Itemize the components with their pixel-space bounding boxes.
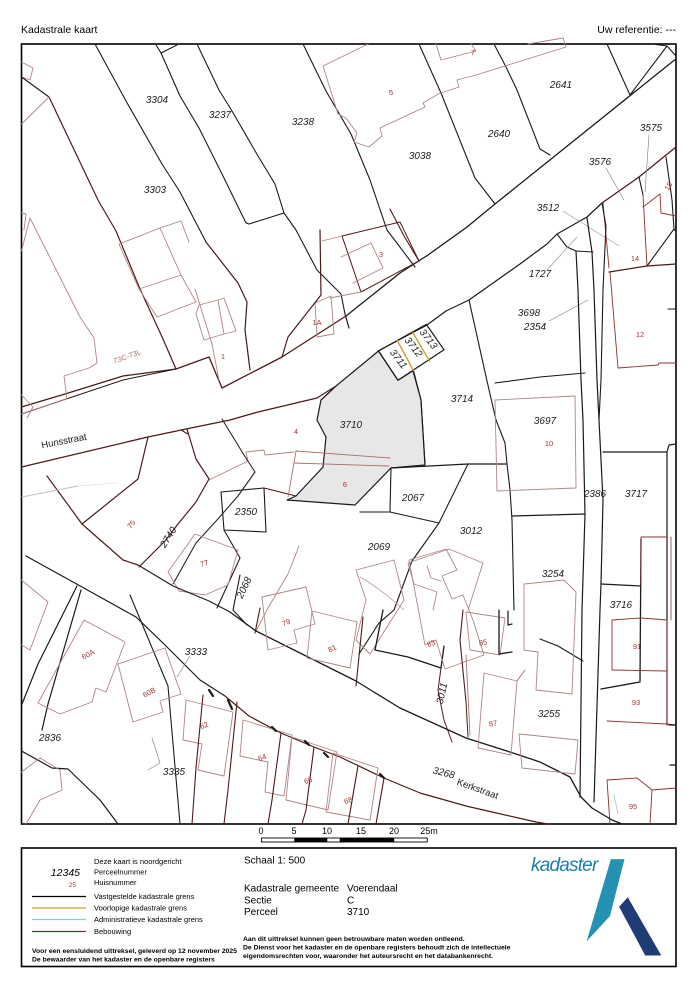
svg-text:10: 10 <box>322 826 332 836</box>
svg-text:3335: 3335 <box>163 767 186 778</box>
svg-text:3333: 3333 <box>185 647 208 658</box>
svg-text:12345: 12345 <box>51 867 80 879</box>
svg-text:6: 6 <box>343 480 347 489</box>
svg-text:3576: 3576 <box>589 157 612 168</box>
svg-text:4: 4 <box>294 427 298 436</box>
svg-text:2350: 2350 <box>234 507 258 518</box>
svg-text:Kadastrale kaart: Kadastrale kaart <box>21 24 98 36</box>
svg-text:2386: 2386 <box>583 489 607 500</box>
svg-text:3716: 3716 <box>610 600 633 611</box>
svg-text:2640: 2640 <box>487 129 511 140</box>
svg-text:Perceelnummer: Perceelnummer <box>94 868 147 877</box>
svg-text:95: 95 <box>629 802 637 811</box>
svg-text:7: 7 <box>471 48 475 57</box>
svg-text:3304: 3304 <box>146 95 169 106</box>
svg-text:3512: 3512 <box>537 203 560 214</box>
svg-text:87: 87 <box>488 718 498 728</box>
svg-text:eigendomsrechten voor, waarond: eigendomsrechten voor, waaronder het aut… <box>243 953 493 960</box>
svg-text:3698: 3698 <box>518 308 541 319</box>
svg-text:10: 10 <box>545 439 553 448</box>
svg-text:2067: 2067 <box>401 493 425 504</box>
svg-text:Huisnummer: Huisnummer <box>94 878 137 887</box>
svg-text:Deze kaart is noordgericht: Deze kaart is noordgericht <box>94 857 182 866</box>
svg-text:3012: 3012 <box>460 526 483 537</box>
svg-text:25m: 25m <box>420 826 438 836</box>
svg-text:5: 5 <box>389 88 393 97</box>
svg-text:2641: 2641 <box>549 80 572 91</box>
svg-text:2836: 2836 <box>38 733 62 744</box>
svg-text:25: 25 <box>69 882 77 889</box>
svg-text:14: 14 <box>631 254 639 263</box>
svg-text:15: 15 <box>356 826 366 836</box>
svg-text:2069: 2069 <box>367 542 391 553</box>
svg-text:Voor een eensluidend uittrekse: Voor een eensluidend uittreksel, gelever… <box>32 948 237 955</box>
svg-text:C: C <box>347 896 354 907</box>
svg-text:3575: 3575 <box>640 123 663 134</box>
svg-text:Aan dit uittreksel kunnen geen: Aan dit uittreksel kunnen geen betrouwba… <box>243 936 465 943</box>
svg-text:Vastgestelde kadastrale grens: Vastgestelde kadastrale grens <box>94 892 195 901</box>
svg-text:Voerendaal: Voerendaal <box>347 884 398 895</box>
svg-text:91: 91 <box>633 642 641 651</box>
svg-text:3254: 3254 <box>542 569 565 580</box>
svg-text:Sectie: Sectie <box>244 896 272 907</box>
svg-text:Perceel: Perceel <box>244 907 278 918</box>
svg-text:93: 93 <box>632 698 640 707</box>
svg-text:3238: 3238 <box>292 117 315 128</box>
svg-text:3237: 3237 <box>209 110 232 121</box>
svg-text:3710: 3710 <box>340 420 363 431</box>
svg-text:3038: 3038 <box>409 151 432 162</box>
svg-text:12: 12 <box>636 330 644 339</box>
svg-text:De bewaarder van het kadaster: De bewaarder van het kadaster en de open… <box>32 957 215 964</box>
svg-text:kadaster: kadaster <box>531 855 599 876</box>
svg-text:5: 5 <box>291 826 296 836</box>
svg-text:3255: 3255 <box>538 709 561 720</box>
svg-text:Kadastrale gemeente: Kadastrale gemeente <box>244 884 340 895</box>
svg-text:3: 3 <box>379 250 383 259</box>
svg-text:3710: 3710 <box>347 907 370 918</box>
svg-text:Administratieve kadastrale gre: Administratieve kadastrale grens <box>94 915 203 924</box>
svg-text:3303: 3303 <box>144 185 167 196</box>
svg-text:Voorlopige kadastrale grens: Voorlopige kadastrale grens <box>94 904 187 913</box>
svg-text:Bebouwing: Bebouwing <box>94 927 131 936</box>
svg-text:20: 20 <box>389 826 399 836</box>
svg-text:Schaal 1: 500: Schaal 1: 500 <box>244 856 306 867</box>
svg-text:Uw referentie: ---: Uw referentie: --- <box>597 24 676 36</box>
svg-text:De Dienst voor het kadaster en: De Dienst voor het kadaster en de openba… <box>243 945 511 952</box>
svg-text:3697: 3697 <box>534 416 557 427</box>
svg-text:3717: 3717 <box>625 489 648 500</box>
svg-text:3714: 3714 <box>451 394 474 405</box>
svg-text:2354: 2354 <box>523 322 547 333</box>
svg-text:1727: 1727 <box>529 269 552 280</box>
svg-text:1A: 1A <box>312 318 321 327</box>
svg-text:85: 85 <box>478 637 488 647</box>
svg-text:1: 1 <box>221 352 225 361</box>
svg-text:0: 0 <box>258 826 263 836</box>
